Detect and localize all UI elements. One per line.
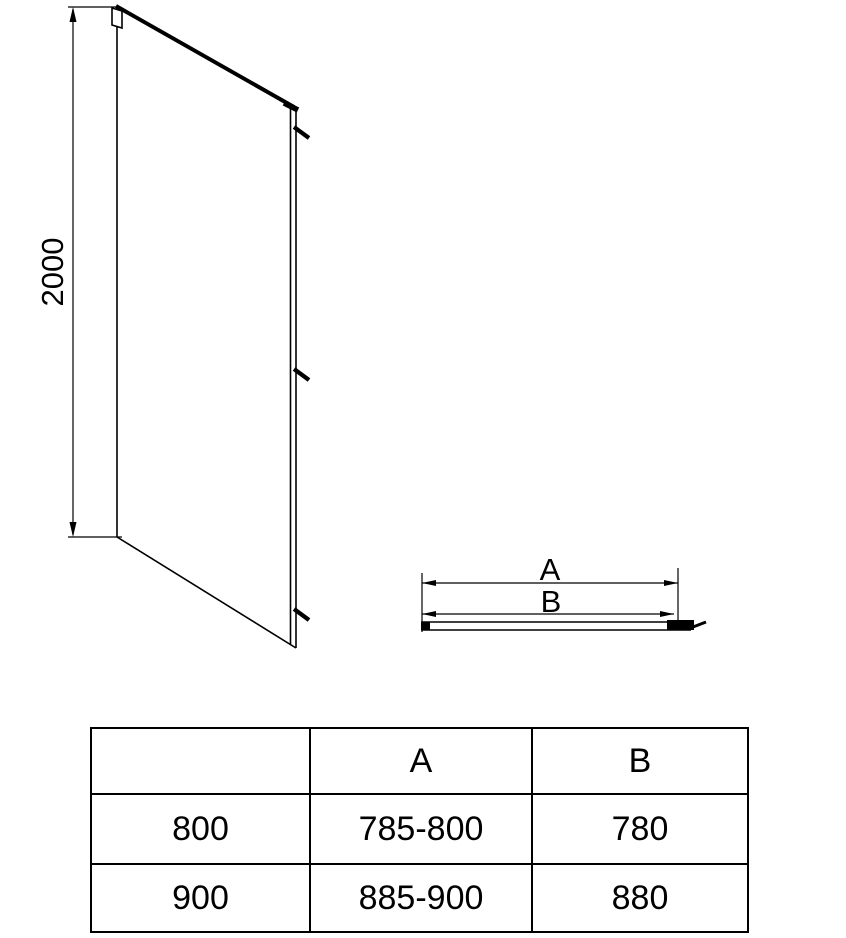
- arrowhead-right-icon: [660, 611, 674, 617]
- arrowhead-right-icon: [664, 580, 678, 586]
- cell-size: 800: [91, 794, 310, 864]
- arrowhead-down-icon: [70, 522, 77, 537]
- top-view-handle-tick: [693, 622, 706, 627]
- dimension-a-label: A: [540, 552, 561, 587]
- height-dimension: [68, 7, 122, 537]
- arrowhead-left-icon: [422, 611, 436, 617]
- cell-size: 900: [91, 864, 310, 932]
- glass-panel-side-view: [116, 6, 309, 648]
- table-row: 800 785-800 780: [91, 794, 748, 864]
- technical-drawing-page: 2000: [0, 0, 846, 938]
- arrowhead-left-icon: [422, 580, 436, 586]
- height-dimension-label: 2000: [35, 238, 70, 307]
- wall-bracket-icon: [112, 8, 122, 28]
- cell-b: 880: [532, 864, 748, 932]
- panel-bottom-edge: [117, 537, 296, 648]
- table-header-row: A B: [91, 728, 748, 794]
- cell-a: 885-900: [310, 864, 532, 932]
- arrowhead-up-icon: [70, 7, 77, 22]
- table-header-a: A: [310, 728, 532, 794]
- table-row: 900 885-900 880: [91, 864, 748, 932]
- cell-b: 780: [532, 794, 748, 864]
- table-header-b: B: [532, 728, 748, 794]
- top-view-wall-profile-cap: [667, 620, 694, 630]
- panel-top-view: [422, 622, 706, 630]
- wall-profile-top-cap: [284, 103, 298, 110]
- dimension-b-label: B: [541, 584, 562, 619]
- panel-top-edge: [116, 6, 294, 107]
- technical-drawing: 2000: [0, 0, 846, 725]
- table-header-size: [91, 728, 310, 794]
- cell-a: 785-800: [310, 794, 532, 864]
- size-table: A B 800 785-800 780 900 885-900 880: [90, 727, 749, 933]
